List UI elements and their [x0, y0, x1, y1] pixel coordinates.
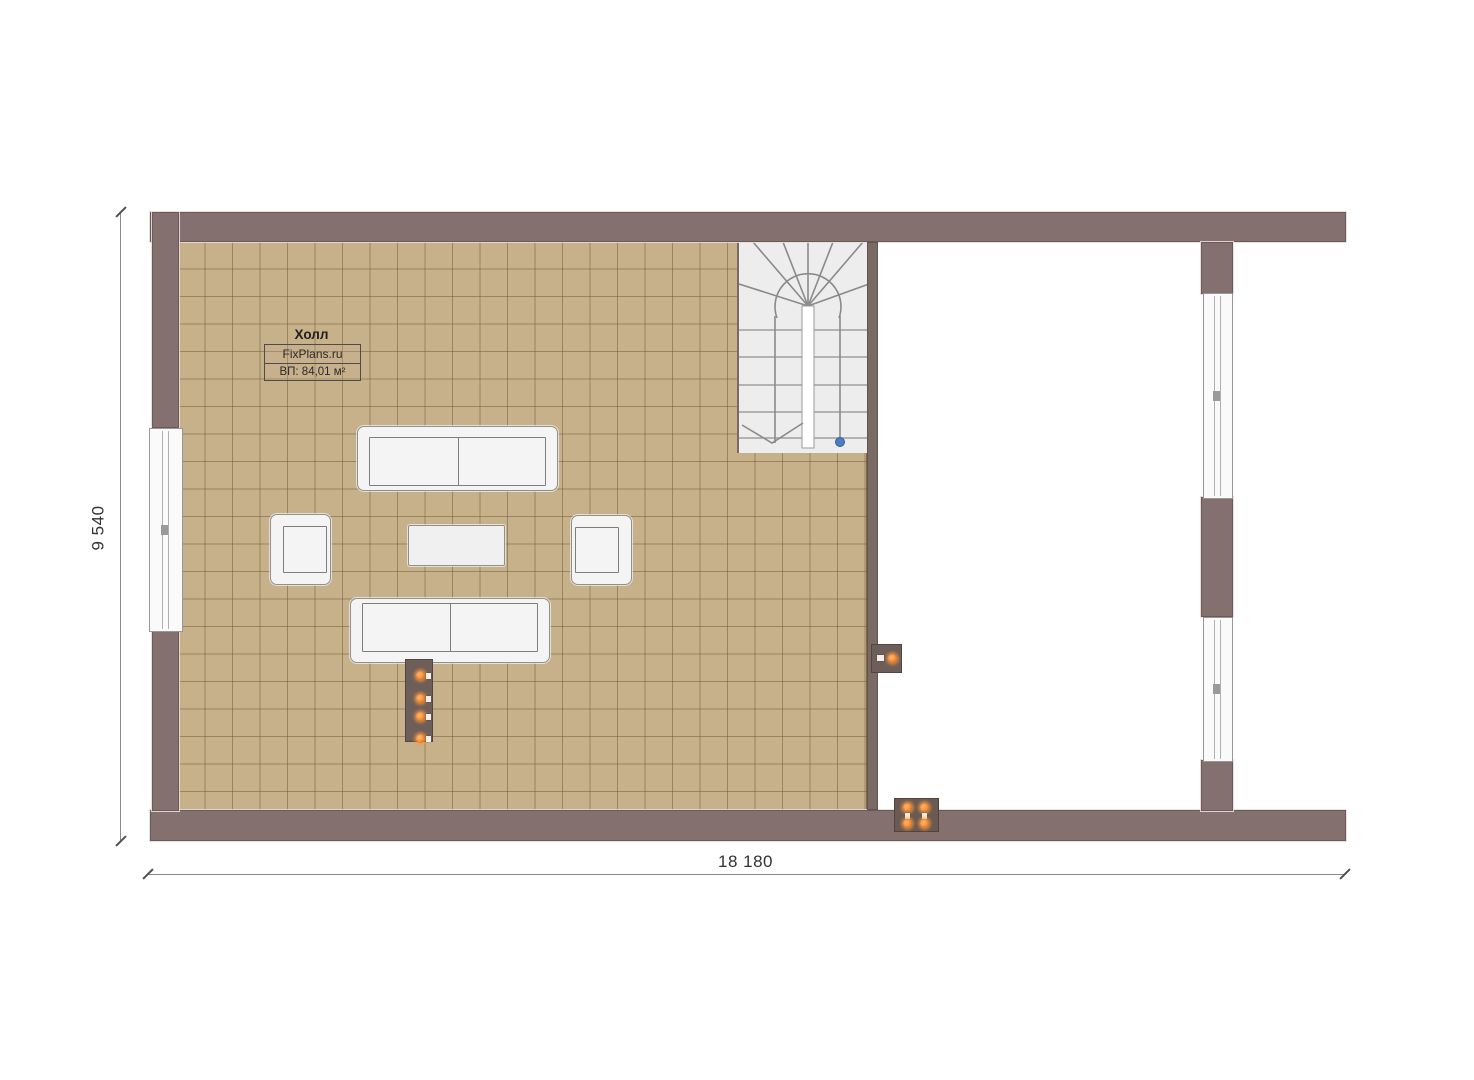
- sofa-cushion-divider: [458, 438, 459, 485]
- right-wall-upper: [1201, 242, 1233, 294]
- brand-label: FixPlans.ru: [265, 345, 360, 364]
- dimension-tick: [115, 206, 126, 217]
- armchair-seat: [283, 526, 327, 573]
- window-frame-line: [1220, 296, 1221, 496]
- right-window-upper: [1203, 293, 1233, 499]
- socket-indicator-icon: [903, 819, 912, 828]
- window-handle: [161, 525, 168, 535]
- interior-partition-wall: [867, 242, 878, 810]
- left-wall-upper: [152, 212, 179, 428]
- window-handle: [1213, 684, 1220, 694]
- sofa-cushion-divider: [450, 604, 451, 651]
- armchair-seat: [575, 527, 619, 573]
- armchair-right: [571, 515, 632, 585]
- window-frame-line: [1220, 620, 1221, 759]
- sofa-seat: [369, 437, 546, 486]
- indicator-light-icon: [416, 734, 425, 743]
- socket-indicator-icon: [903, 803, 912, 812]
- right-window-lower: [1203, 617, 1233, 762]
- room-name-label: Холл: [264, 327, 359, 342]
- armchair-left: [270, 514, 331, 585]
- indicator-light-icon: [416, 712, 425, 721]
- floor-plan-canvas: Холл FixPlans.ru ВП: 84,01 м²: [0, 0, 1474, 1080]
- utility-panel: [405, 659, 433, 742]
- switch-icon: [426, 696, 431, 702]
- staircase-symbol: [739, 242, 869, 453]
- indicator-light-icon: [416, 694, 425, 703]
- indicator-light-icon: [416, 671, 425, 680]
- vertical-dimension-line: [120, 212, 121, 841]
- right-wall-middle: [1201, 497, 1233, 617]
- switch-icon: [426, 673, 431, 679]
- horizontal-dimension-label: 18 180: [718, 852, 773, 872]
- switch-icon: [426, 736, 431, 742]
- dimension-tick: [115, 835, 126, 846]
- left-wall-lower: [152, 630, 179, 811]
- socket-indicator-icon: [920, 819, 929, 828]
- left-window: [149, 428, 183, 632]
- switch-icon: [426, 714, 431, 720]
- vertical-dimension-label: 9 540: [89, 505, 109, 550]
- socket-indicator-icon: [920, 803, 929, 812]
- wall-switch-box: [871, 644, 902, 673]
- window-frame-line: [168, 431, 169, 629]
- staircase: [737, 242, 869, 453]
- sofa-top: [357, 426, 558, 491]
- indicator-light-icon: [888, 654, 897, 663]
- switch-icon: [877, 655, 884, 661]
- sofa-seat: [362, 603, 538, 652]
- room-area-label: ВП: 84,01 м²: [265, 364, 360, 380]
- room-info-box: FixPlans.ru ВП: 84,01 м²: [264, 344, 361, 381]
- coffee-table: [408, 525, 505, 566]
- window-handle: [1213, 391, 1220, 401]
- stair-start-marker: [836, 438, 845, 447]
- floor-socket-box: [894, 798, 939, 832]
- sofa-bottom: [350, 598, 550, 663]
- right-wall-lower: [1201, 760, 1233, 811]
- bottom-wall: [150, 810, 1346, 841]
- top-wall: [150, 212, 1346, 242]
- horizontal-dimension-line: [148, 874, 1345, 875]
